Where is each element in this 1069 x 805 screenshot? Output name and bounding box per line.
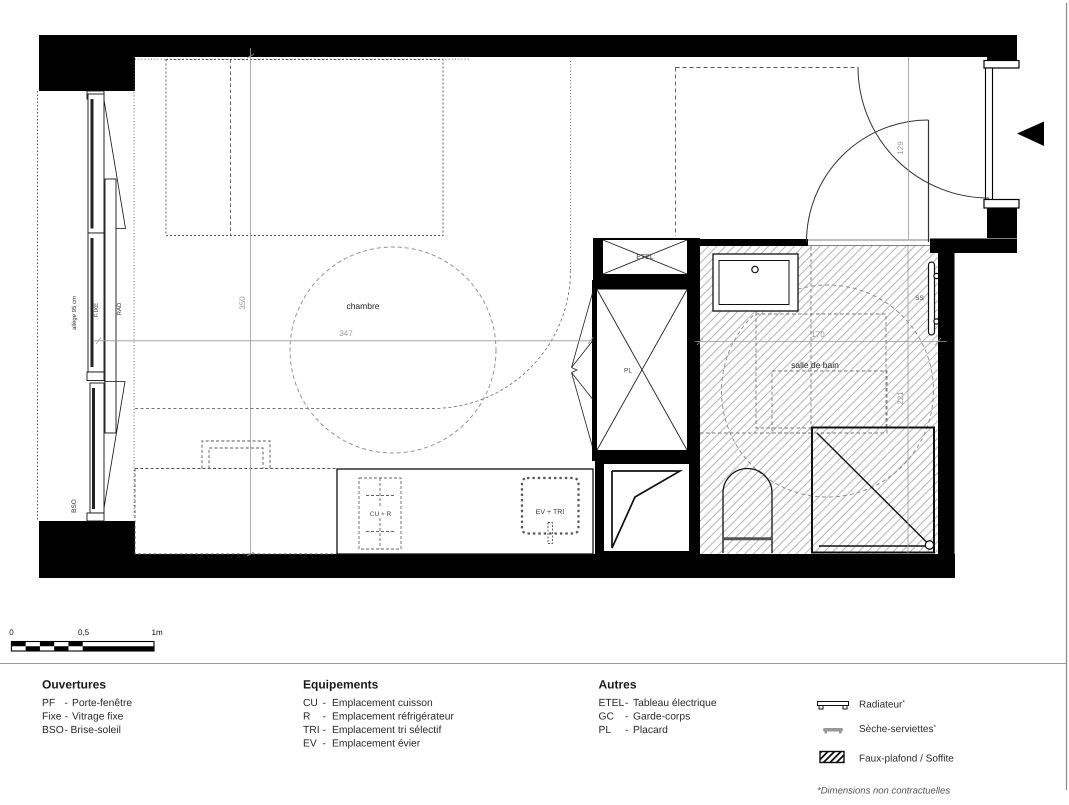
svg-text:129: 129 (896, 141, 905, 155)
svg-text:TRI: TRI (303, 725, 320, 736)
svg-text:EV + TRI: EV + TRI (536, 509, 565, 516)
svg-text:Vitrage fixe: Vitrage fixe (72, 712, 124, 723)
svg-text:-: - (625, 698, 628, 709)
svg-text:*Dimensions non contractuelles: *Dimensions non contractuelles (817, 786, 950, 797)
svg-text:Emplacement tri sélectif: Emplacement tri sélectif (332, 725, 441, 736)
svg-text:Fixe: Fixe (42, 712, 62, 723)
svg-text:Equipements: Equipements (303, 678, 379, 692)
svg-text:F.IXE: F.IXE (93, 303, 100, 317)
svg-text:salle de bain: salle de bain (791, 360, 839, 370)
svg-text:allège 95 cm: allège 95 cm (71, 296, 78, 330)
svg-text:Garde-corps: Garde-corps (633, 712, 690, 723)
svg-text:RAD: RAD (116, 302, 123, 315)
svg-text:R: R (303, 712, 310, 723)
svg-text:PL: PL (624, 368, 632, 375)
svg-text:GC: GC (599, 712, 615, 723)
svg-text:-: - (625, 725, 628, 736)
svg-text:Tableau électrique: Tableau électrique (633, 698, 717, 709)
svg-text:-: - (323, 712, 326, 723)
svg-text:PF: PF (42, 698, 55, 709)
svg-text:BSO: BSO (42, 725, 64, 736)
svg-text:Autres: Autres (599, 678, 637, 692)
svg-text:PL: PL (599, 725, 612, 736)
svg-text:-: - (323, 698, 326, 709)
svg-text:EV: EV (303, 739, 317, 750)
svg-text:Radiateur*: Radiateur* (859, 700, 905, 711)
svg-text:SS: SS (915, 295, 924, 302)
svg-text:Brise-soleil: Brise-soleil (71, 725, 121, 736)
svg-text:-: - (323, 739, 326, 750)
svg-text:-: - (65, 712, 68, 723)
svg-text:Emplacement cuisson: Emplacement cuisson (332, 698, 433, 709)
svg-text:350: 350 (238, 296, 247, 310)
svg-text:-: - (625, 712, 628, 723)
svg-text:0,5: 0,5 (78, 628, 90, 637)
svg-text:170: 170 (811, 330, 825, 339)
svg-text:-: - (65, 725, 68, 736)
svg-text:chambre: chambre (346, 301, 379, 311)
svg-text:Faux-plafond / Soffite: Faux-plafond / Soffite (859, 754, 954, 765)
svg-text:Placard: Placard (633, 725, 668, 736)
svg-text:ETEL: ETEL (636, 254, 654, 261)
svg-text:-: - (323, 725, 326, 736)
svg-text:CU: CU (303, 698, 318, 709)
svg-text:Emplacement réfrigérateur: Emplacement réfrigérateur (332, 712, 454, 723)
svg-text:-: - (65, 698, 68, 709)
svg-text:ETEL: ETEL (599, 698, 625, 709)
svg-text:Porte-fenêtre: Porte-fenêtre (72, 698, 132, 709)
svg-text:0: 0 (9, 628, 14, 637)
svg-text:BSO: BSO (71, 499, 78, 513)
svg-text:Emplacement évier: Emplacement évier (332, 739, 421, 750)
svg-text:Ouvertures: Ouvertures (42, 678, 106, 692)
svg-text:1m: 1m (152, 628, 163, 637)
svg-text:Sèche-serviettes*: Sèche-serviettes* (859, 724, 936, 735)
svg-text:347: 347 (339, 329, 353, 338)
svg-text:221: 221 (896, 391, 905, 405)
svg-text:CU + R: CU + R (370, 511, 392, 518)
